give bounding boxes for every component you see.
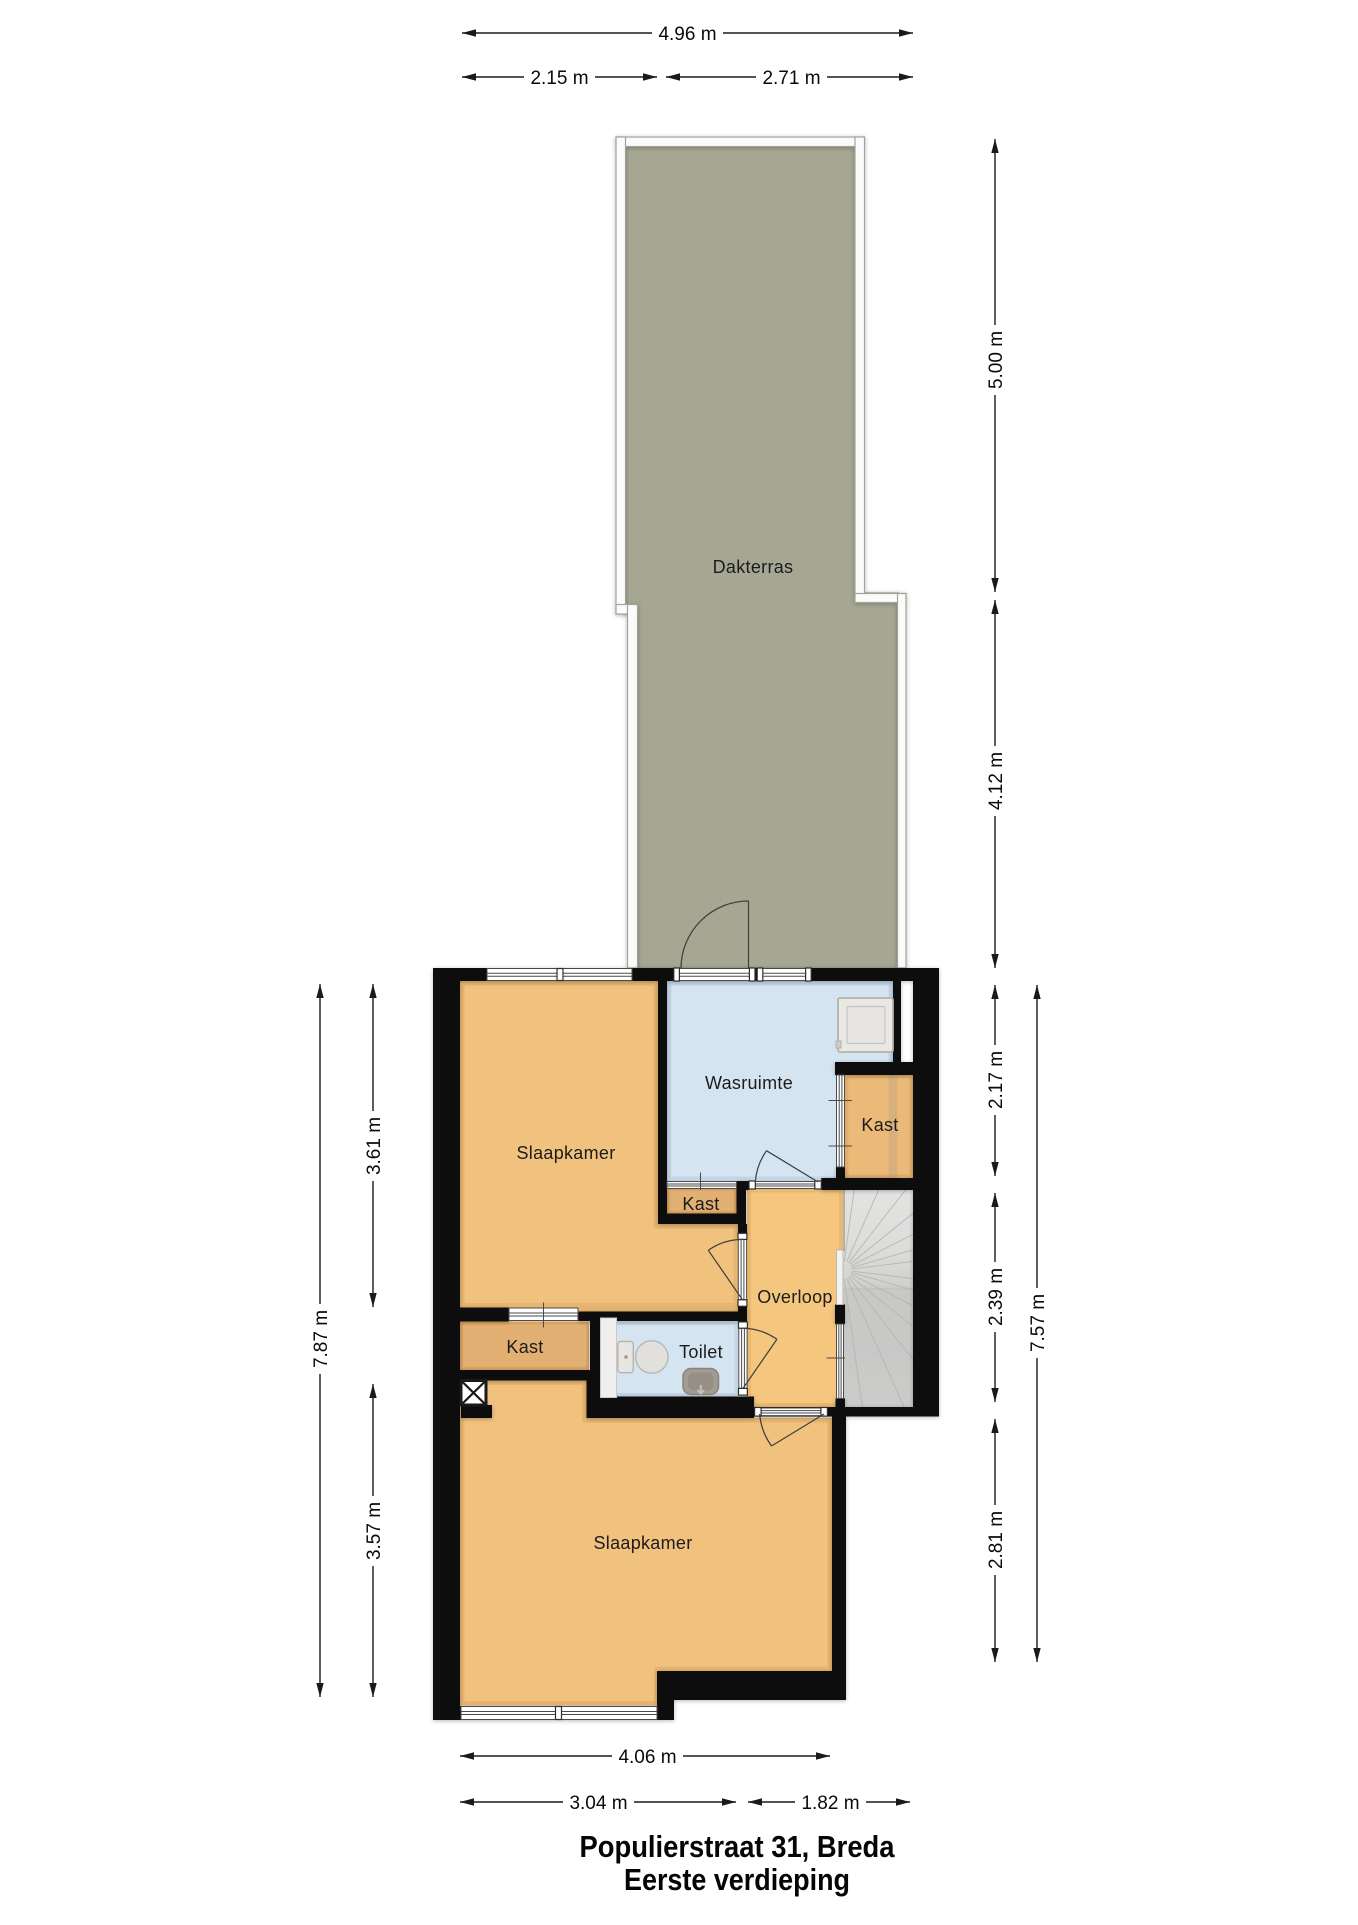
svg-text:Kast: Kast xyxy=(682,1194,719,1214)
svg-text:2.17 m: 2.17 m xyxy=(986,1051,1007,1109)
svg-text:Wasruimte: Wasruimte xyxy=(705,1073,793,1093)
svg-text:2.71 m: 2.71 m xyxy=(762,68,820,89)
svg-text:Toilet: Toilet xyxy=(679,1342,723,1362)
svg-text:2.15 m: 2.15 m xyxy=(530,68,588,89)
svg-text:Slaapkamer: Slaapkamer xyxy=(516,1143,615,1163)
svg-text:7.87 m: 7.87 m xyxy=(311,1310,332,1368)
svg-text:1.82 m: 1.82 m xyxy=(801,1793,859,1814)
svg-text:Populierstraat 31, Breda: Populierstraat 31, Breda xyxy=(580,1830,896,1864)
svg-text:Kast: Kast xyxy=(506,1337,543,1357)
svg-text:Slaapkamer: Slaapkamer xyxy=(593,1533,692,1553)
svg-text:2.81 m: 2.81 m xyxy=(986,1511,1007,1569)
svg-text:7.57 m: 7.57 m xyxy=(1028,1294,1049,1352)
svg-text:4.12 m: 4.12 m xyxy=(986,752,1007,810)
svg-text:4.06 m: 4.06 m xyxy=(618,1747,676,1768)
svg-text:Kast: Kast xyxy=(861,1115,898,1135)
svg-text:4.96 m: 4.96 m xyxy=(658,24,716,45)
svg-text:3.04 m: 3.04 m xyxy=(569,1793,627,1814)
svg-text:3.61 m: 3.61 m xyxy=(364,1117,385,1175)
svg-text:5.00 m: 5.00 m xyxy=(986,331,1007,389)
svg-text:Dakterras: Dakterras xyxy=(713,557,794,577)
svg-text:2.39 m: 2.39 m xyxy=(986,1268,1007,1326)
svg-text:Eerste verdieping: Eerste verdieping xyxy=(624,1863,850,1897)
svg-text:Overloop: Overloop xyxy=(757,1287,832,1307)
svg-text:3.57 m: 3.57 m xyxy=(364,1502,385,1560)
